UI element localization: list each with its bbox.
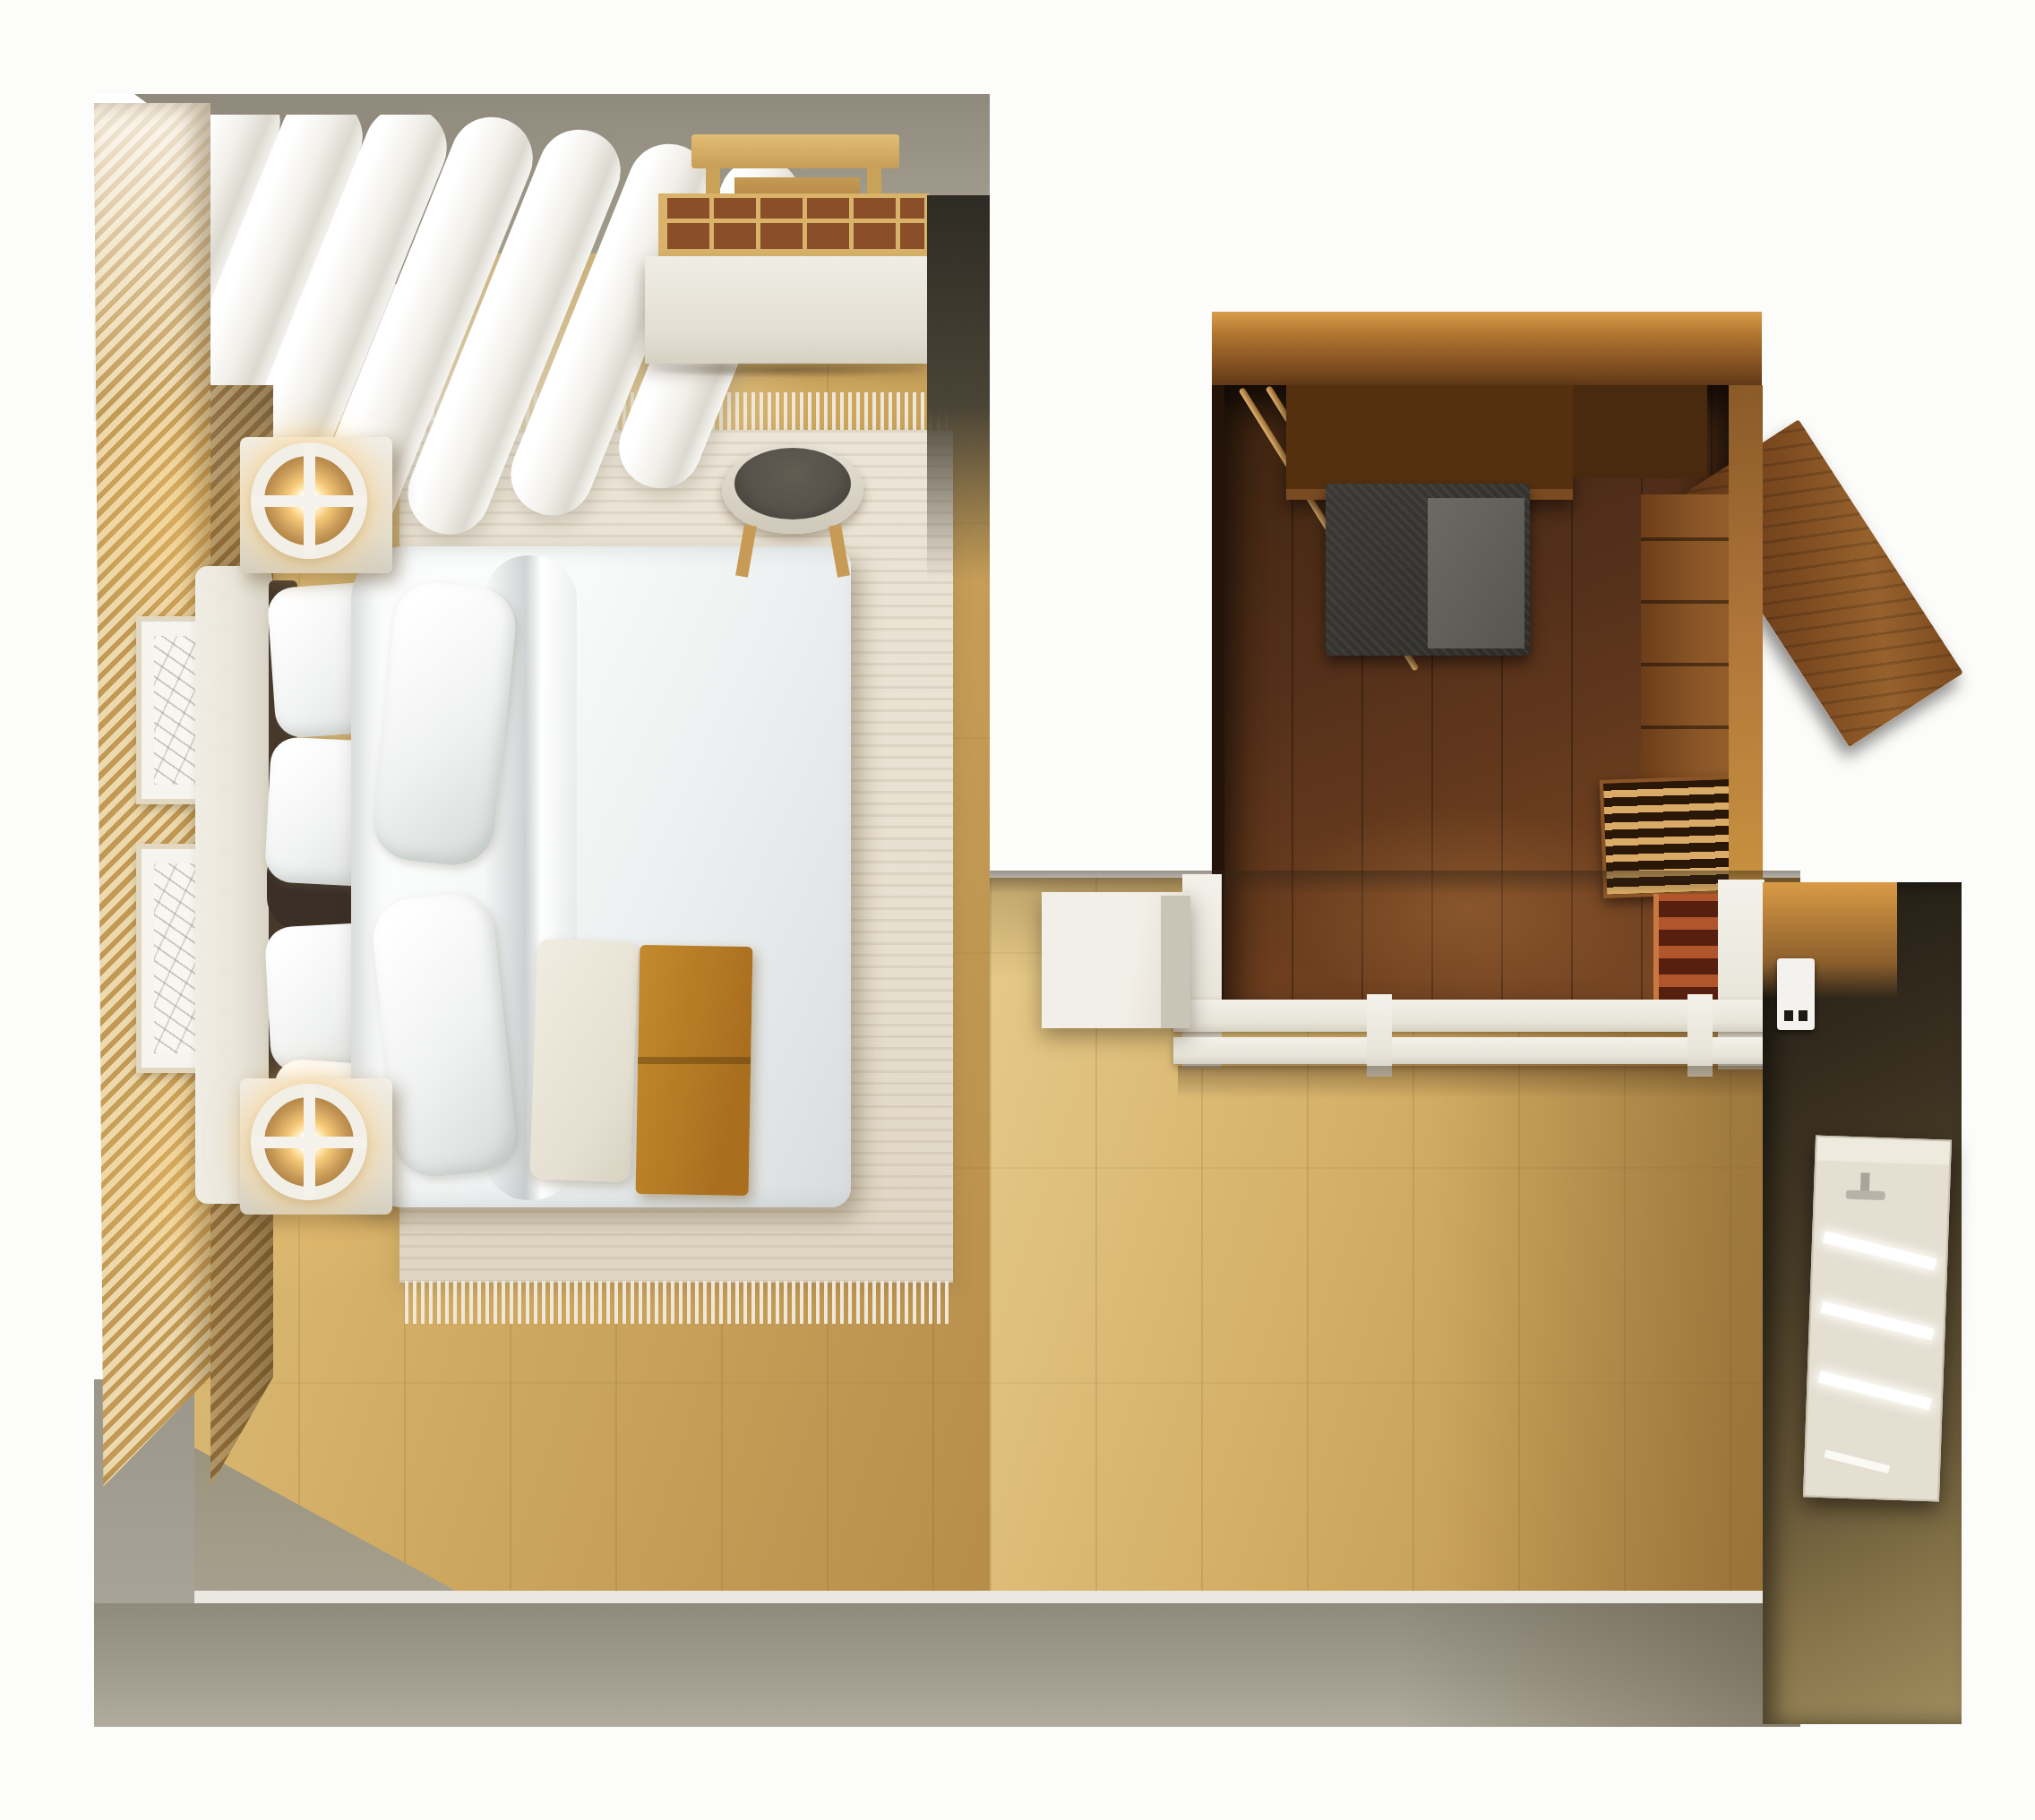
shadowed-corner bbox=[927, 195, 990, 580]
switch-button bbox=[1784, 1010, 1793, 1021]
ring-lamp-top bbox=[251, 442, 367, 559]
radiator-slot bbox=[1820, 1301, 1934, 1341]
closet-overhead-shelf bbox=[1286, 385, 1573, 500]
wall-switch bbox=[1777, 958, 1815, 1030]
switch-button bbox=[1799, 1010, 1807, 1021]
radiator-slot bbox=[1823, 1232, 1936, 1271]
lamp-crossbar bbox=[304, 1084, 315, 1200]
desk-shadow bbox=[648, 362, 926, 378]
radiator-top-cap bbox=[1816, 1137, 1950, 1165]
render-canvas bbox=[0, 0, 2035, 1820]
sliding-door-stopper bbox=[1367, 994, 1392, 1077]
closet-overhead-shelf bbox=[1573, 385, 1707, 478]
sliding-door-stopper bbox=[1687, 994, 1713, 1077]
radiator-slot-dim bbox=[1824, 1449, 1890, 1473]
closet-top-wall bbox=[1212, 312, 1762, 387]
lamp-crossbar bbox=[304, 442, 315, 559]
rug-fringe-bottom bbox=[405, 1281, 951, 1324]
panel-radiator bbox=[1803, 1135, 1952, 1501]
stool-seat bbox=[734, 448, 851, 519]
radiator-valve-handle bbox=[1846, 1190, 1885, 1201]
white-cabinet-side bbox=[1161, 896, 1190, 1028]
throw-fold-line bbox=[638, 1057, 751, 1064]
desk bbox=[645, 256, 928, 364]
radiator-slot bbox=[1818, 1371, 1932, 1411]
closet-right-wall bbox=[1729, 385, 1763, 885]
south-wall-shadow bbox=[1397, 1601, 1800, 1727]
cutout-edge-shadow bbox=[990, 871, 1800, 894]
laptop-stand-bar bbox=[691, 134, 899, 168]
bench-cushion bbox=[529, 939, 638, 1182]
desk-organizer bbox=[658, 193, 929, 258]
ring-lamp-bottom bbox=[251, 1084, 367, 1200]
mustard-throw-blanket bbox=[636, 945, 753, 1196]
partition-shadow bbox=[1178, 1066, 1805, 1098]
baseboard bbox=[193, 1591, 1800, 1603]
basket-cloth bbox=[1428, 498, 1524, 648]
closet-left-edge bbox=[1212, 385, 1224, 887]
